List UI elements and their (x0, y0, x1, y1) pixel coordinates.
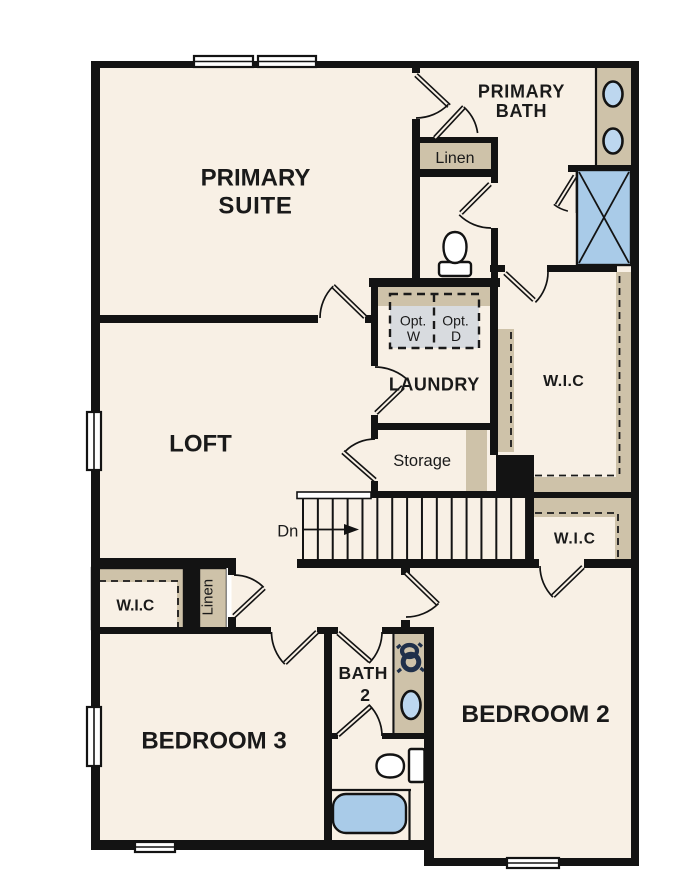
svg-text:Dn: Dn (277, 522, 298, 540)
svg-text:Opt.: Opt. (400, 313, 426, 329)
svg-text:W: W (407, 328, 421, 344)
svg-text:Storage: Storage (393, 452, 451, 470)
svg-text:2: 2 (360, 685, 370, 705)
svg-text:LOFT: LOFT (169, 431, 232, 458)
svg-text:PRIMARY: PRIMARY (478, 82, 565, 102)
svg-text:W.I.C: W.I.C (116, 598, 154, 615)
svg-text:BATH: BATH (496, 101, 547, 121)
svg-text:LAUNDRY: LAUNDRY (389, 374, 480, 394)
svg-text:D: D (451, 328, 461, 344)
svg-text:Opt.: Opt. (442, 313, 468, 329)
svg-text:W.I.C: W.I.C (543, 373, 584, 390)
svg-text:BATH: BATH (339, 663, 388, 683)
svg-text:PRIMARY: PRIMARY (201, 165, 311, 192)
svg-text:BEDROOM 2: BEDROOM 2 (461, 701, 609, 728)
svg-text:W.I.C: W.I.C (554, 531, 596, 548)
svg-text:SUITE: SUITE (218, 193, 292, 220)
svg-text:Linen: Linen (435, 150, 474, 167)
svg-text:BEDROOM 3: BEDROOM 3 (141, 728, 286, 755)
svg-text:Linen: Linen (200, 579, 217, 616)
